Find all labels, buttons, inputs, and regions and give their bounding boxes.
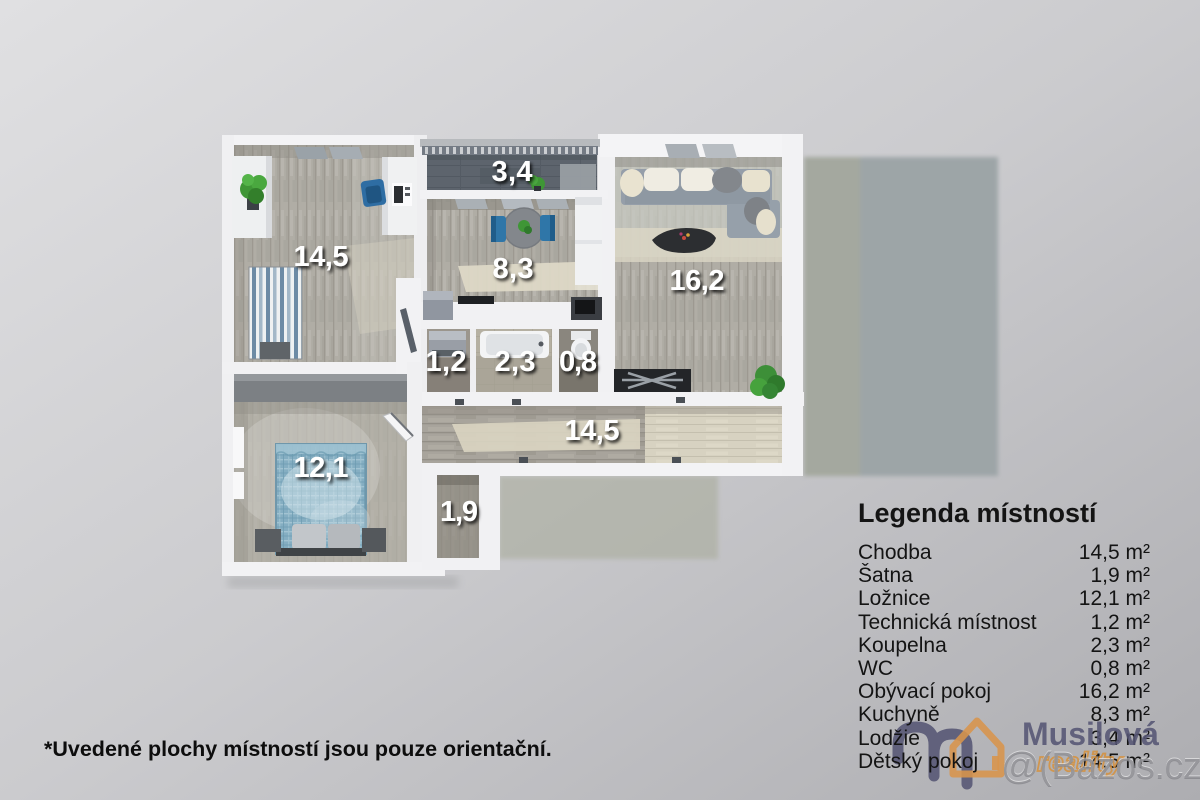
svg-text:3,4: 3,4 [492,156,533,188]
svg-text:14,5: 14,5 [294,241,349,273]
svg-text:0,8: 0,8 [559,346,597,378]
svg-text:14,5: 14,5 [565,415,620,447]
svg-text:16,2: 16,2 [670,265,725,297]
svg-text:1,2: 1,2 [426,346,467,378]
svg-text:12,1: 12,1 [294,452,349,484]
svg-text:8,3: 8,3 [493,253,534,285]
svg-text:2,3: 2,3 [495,346,536,378]
svg-text:1,9: 1,9 [440,496,478,528]
